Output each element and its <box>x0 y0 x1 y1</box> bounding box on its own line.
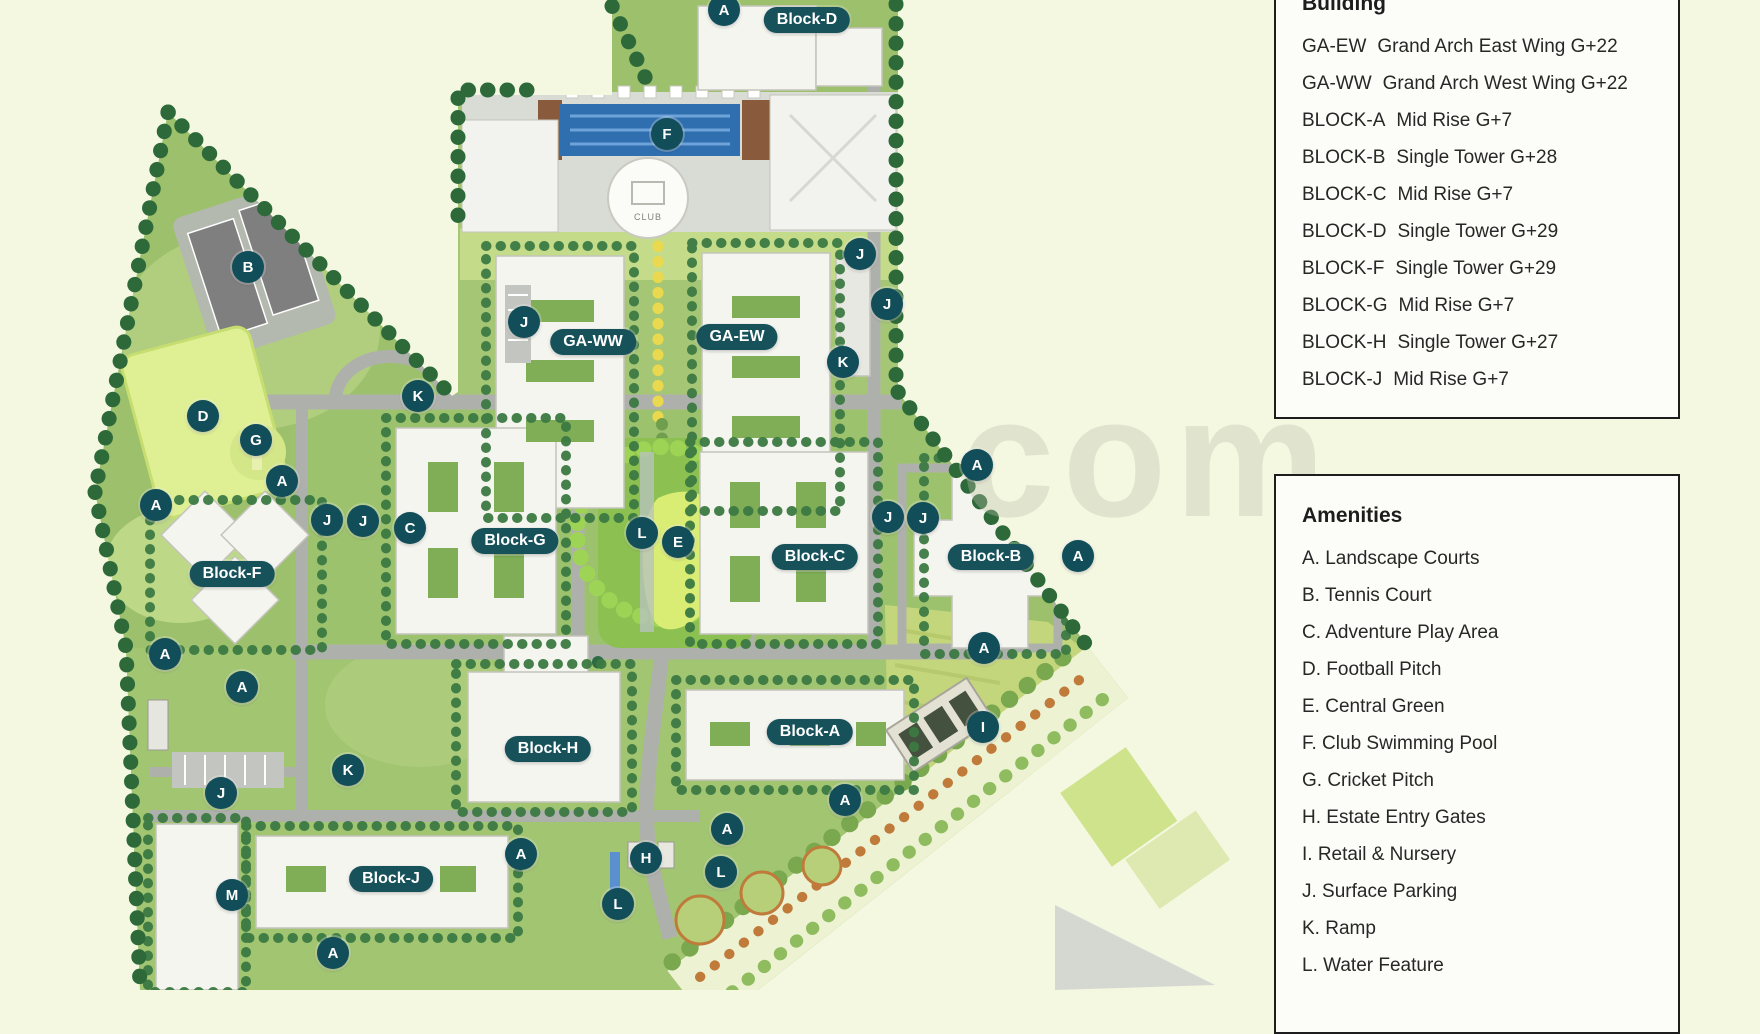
building-legend-item: BLOCK-HSingle Tower G+27 <box>1302 324 1668 361</box>
building-legend-item: BLOCK-DSingle Tower G+29 <box>1302 213 1668 250</box>
map-marker-j: J <box>844 238 876 270</box>
map-marker-a: A <box>266 465 298 497</box>
map-marker-j: J <box>871 288 903 320</box>
building-legend-item: BLOCK-CMid Rise G+7 <box>1302 176 1668 213</box>
map-marker-a: A <box>961 449 993 481</box>
amenity-legend-item: G. Cricket Pitch <box>1302 762 1668 799</box>
map-marker-a: A <box>505 838 537 870</box>
block-label-block-b: Block-B <box>948 544 1034 570</box>
amenity-legend-item: F. Club Swimming Pool <box>1302 725 1668 762</box>
map-marker-a: A <box>829 784 861 816</box>
map-marker-l: L <box>602 888 634 920</box>
amenity-legend-item: J. Surface Parking <box>1302 873 1668 910</box>
map-marker-l: L <box>705 856 737 888</box>
block-label-block-c: Block-C <box>772 544 858 570</box>
amenity-legend-item: D. Football Pitch <box>1302 651 1668 688</box>
building-legend-item: BLOCK-GMid Rise G+7 <box>1302 287 1668 324</box>
amenity-legend-item: A. Landscape Courts <box>1302 540 1668 577</box>
amenity-legend-item: L. Water Feature <box>1302 947 1668 984</box>
map-marker-f: F <box>651 118 683 150</box>
map-marker-a: A <box>140 489 172 521</box>
amenities-legend-panel: Amenities A. Landscape CourtsB. Tennis C… <box>1274 474 1680 1034</box>
map-marker-k: K <box>332 754 364 786</box>
map-marker-b: B <box>232 251 264 283</box>
map-marker-j: J <box>872 501 904 533</box>
block-label-block-a: Block-A <box>767 719 853 745</box>
building-legend-panel: Building GA-EWGrand Arch East Wing G+22G… <box>1274 0 1680 419</box>
building-legend-item: BLOCK-FSingle Tower G+29 <box>1302 250 1668 287</box>
amenities-legend-list: A. Landscape CourtsB. Tennis CourtC. Adv… <box>1302 540 1668 984</box>
map-marker-a: A <box>226 671 258 703</box>
amenity-legend-item: E. Central Green <box>1302 688 1668 725</box>
amenity-legend-item: B. Tennis Court <box>1302 577 1668 614</box>
map-marker-m: M <box>216 879 248 911</box>
amenity-legend-item: H. Estate Entry Gates <box>1302 799 1668 836</box>
building-legend-item: BLOCK-BSingle Tower G+28 <box>1302 139 1668 176</box>
amenity-legend-item: C. Adventure Play Area <box>1302 614 1668 651</box>
amenity-legend-item: I. Retail & Nursery <box>1302 836 1668 873</box>
map-marker-c: C <box>394 512 426 544</box>
building-legend-item: GA-EWGrand Arch East Wing G+22 <box>1302 28 1668 65</box>
map-marker-e: E <box>662 526 694 558</box>
block-label-block-g: Block-G <box>471 528 558 554</box>
block-label-block-f: Block-F <box>190 561 275 587</box>
club-building-label: CLUB <box>634 212 662 222</box>
block-label-ga-ew: GA-EW <box>696 324 777 350</box>
map-marker-a: A <box>149 638 181 670</box>
map-marker-d: D <box>187 400 219 432</box>
map-marker-i: I <box>967 711 999 743</box>
block-label-ga-ww: GA-WW <box>550 329 636 355</box>
map-marker-j: J <box>907 502 939 534</box>
map-marker-a: A <box>968 632 1000 664</box>
map-marker-a: A <box>1062 540 1094 572</box>
map-marker-j: J <box>508 306 540 338</box>
amenities-legend-title: Amenities <box>1302 504 1402 528</box>
building-legend-item: BLOCK-JMid Rise G+7 <box>1302 361 1668 398</box>
map-marker-h: H <box>630 842 662 874</box>
map-marker-j: J <box>205 777 237 809</box>
building-legend-title: Building <box>1302 0 1386 16</box>
map-marker-a: A <box>711 813 743 845</box>
map-marker-g: G <box>240 424 272 456</box>
site-plan-page: com AFBJJKJKDGAAJJCLEJJAAAAAIAKJMAHLLAAB… <box>0 0 1760 990</box>
map-marker-l: L <box>626 517 658 549</box>
block-label-block-h: Block-H <box>505 736 591 762</box>
map-marker-k: K <box>827 346 859 378</box>
map-marker-j: J <box>311 504 343 536</box>
building-legend-item: GA-WWGrand Arch West Wing G+22 <box>1302 65 1668 102</box>
map-marker-j: J <box>347 505 379 537</box>
block-label-block-j: Block-J <box>349 866 433 892</box>
building-legend-item: BLOCK-AMid Rise G+7 <box>1302 102 1668 139</box>
building-legend-list: GA-EWGrand Arch East Wing G+22GA-WWGrand… <box>1302 28 1668 398</box>
amenity-legend-item: K. Ramp <box>1302 910 1668 947</box>
map-marker-a: A <box>317 937 349 969</box>
map-marker-k: K <box>402 380 434 412</box>
block-label-block-d: Block-D <box>764 7 850 33</box>
